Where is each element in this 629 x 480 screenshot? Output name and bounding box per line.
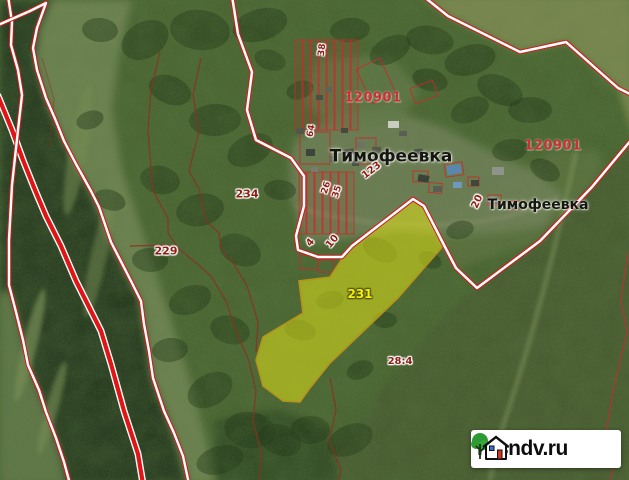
map-canvas[interactable]: 38 64 120901 120901 Тимофеевка Тимофеевк…	[0, 0, 629, 480]
satellite-map	[0, 0, 629, 480]
rosndv-logo-icon	[471, 430, 509, 462]
watermark-rosndv[interactable]: rosndv.ru	[471, 430, 621, 468]
